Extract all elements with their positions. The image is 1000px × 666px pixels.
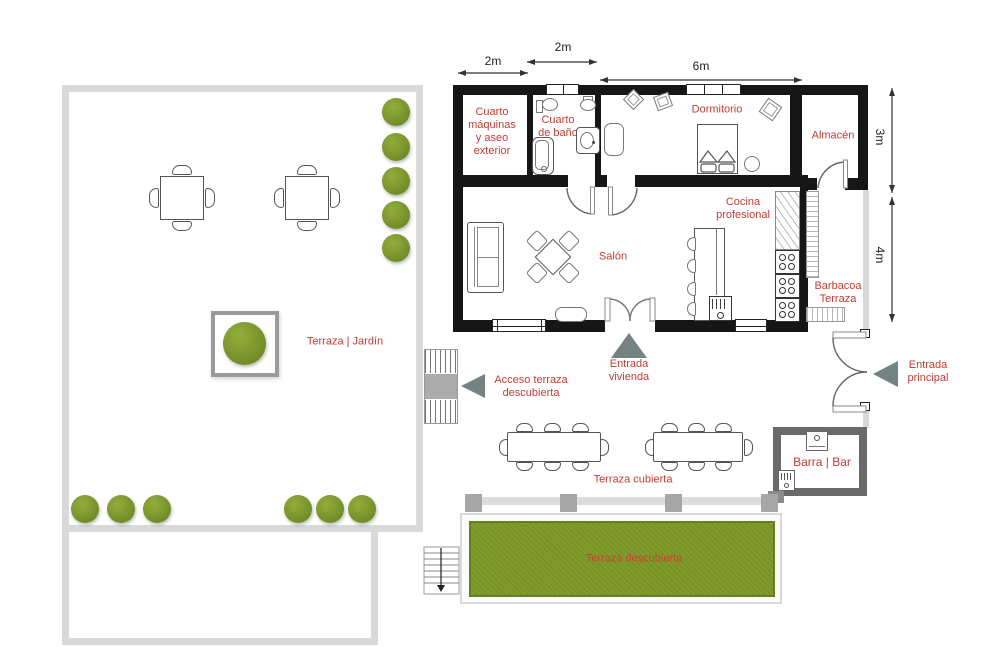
stove-icon: [775, 298, 800, 322]
ottoman-icon: [555, 307, 587, 322]
terrace-edge: [465, 497, 778, 505]
bed-icon: [697, 124, 738, 174]
stairs-icon: [424, 349, 458, 424]
garden-area: [62, 85, 423, 532]
garden-lower-area: [62, 525, 378, 645]
stairs-down-icon: [423, 546, 460, 596]
pillar: [665, 494, 682, 512]
pillar: [465, 494, 482, 512]
side-table-icon: [744, 156, 760, 172]
armchair-icon: [759, 98, 783, 122]
double-door-icon: [603, 296, 657, 324]
bbq-chimney-icon: [806, 191, 819, 278]
wardrobe-icon: [604, 123, 624, 156]
stool-icon: [687, 302, 696, 316]
double-door-icon: [828, 328, 872, 416]
bush-icon: [316, 495, 344, 523]
dimension-arrows-top: [450, 40, 870, 90]
tree-icon: [223, 322, 266, 365]
door-arc-icon: [563, 185, 599, 217]
stool-icon: [687, 259, 696, 273]
bush-icon: [143, 495, 171, 523]
machine-room-label: Cuarto máquinas y aseo exterior: [468, 106, 516, 158]
sofa-icon: [467, 222, 504, 293]
home-entrance-icon: [611, 333, 647, 358]
bush-icon: [348, 495, 376, 523]
counter-icon: [775, 191, 800, 250]
bbq-label: Barbacoa Terraza: [814, 280, 861, 306]
sink-icon: [576, 127, 600, 154]
stool-icon: [687, 282, 696, 296]
grill-icon: [709, 296, 732, 321]
floor-plan: Terraza | Jardín Cuarto máq: [0, 0, 1000, 666]
door-arc-icon: [605, 185, 641, 219]
dimension-label: 6m: [693, 59, 710, 73]
stool-icon: [687, 237, 696, 251]
dimension-label: 2m: [485, 54, 502, 68]
bar-label: Barra | Bar: [793, 455, 851, 469]
main-entrance-label: Entrada principal: [908, 359, 949, 385]
window-icon: [735, 319, 767, 332]
kitchen-label: Cocina profesional: [716, 196, 770, 222]
dimension-arrows-right: [878, 82, 906, 328]
bush-icon: [107, 495, 135, 523]
dimension-label: 3m: [873, 129, 887, 146]
bush-icon: [382, 98, 410, 126]
bedroom-label: Dormitorio: [692, 104, 743, 117]
bar-appliance-icon: [778, 470, 795, 491]
bbq-counter-icon: [806, 307, 845, 322]
door-arc-icon: [813, 156, 851, 192]
stove-icon: [775, 274, 800, 298]
main-entrance-icon: [873, 361, 898, 387]
window-icon: [492, 319, 546, 332]
bush-icon: [284, 495, 312, 523]
stove-icon: [775, 250, 800, 274]
wall: [790, 95, 802, 178]
living-room-label: Salón: [599, 251, 627, 264]
wall: [863, 190, 869, 329]
bar-sink-icon: [806, 431, 828, 451]
garden-label: Terraza | Jardín: [307, 336, 383, 349]
bathtub-icon: [532, 137, 554, 175]
storage-label: Almacén: [812, 130, 855, 143]
open-terrace-label: Terraza descubierta: [586, 553, 683, 566]
pillar: [560, 494, 577, 512]
bush-icon: [382, 234, 410, 262]
covered-terrace-label: Terraza cubierta: [594, 474, 673, 487]
pillar: [761, 494, 778, 512]
access-terrace-label: Acceso terraza descubierta: [494, 374, 567, 400]
bush-icon: [382, 167, 410, 195]
dimension-label: 4m: [873, 247, 887, 264]
bush-icon: [382, 201, 410, 229]
bush-icon: [71, 495, 99, 523]
home-entrance-label: Entrada vivienda: [609, 358, 649, 384]
wall: [858, 85, 868, 190]
wall: [453, 85, 463, 332]
access-arrow-icon: [461, 374, 485, 398]
dimension-label: 2m: [555, 40, 572, 54]
bush-icon: [382, 133, 410, 161]
